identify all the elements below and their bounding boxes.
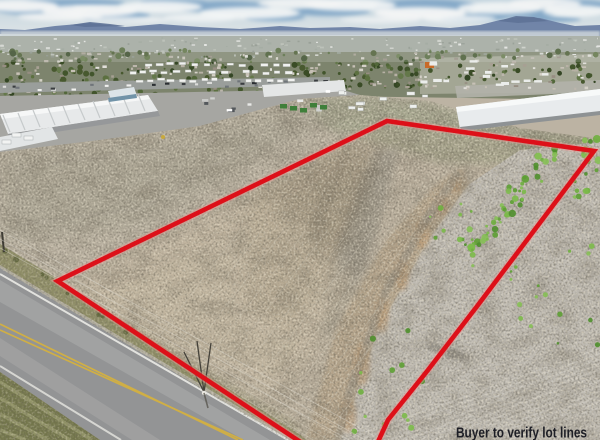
svg-text:Buyer to verify lot lines: Buyer to verify lot lines — [456, 425, 587, 440]
